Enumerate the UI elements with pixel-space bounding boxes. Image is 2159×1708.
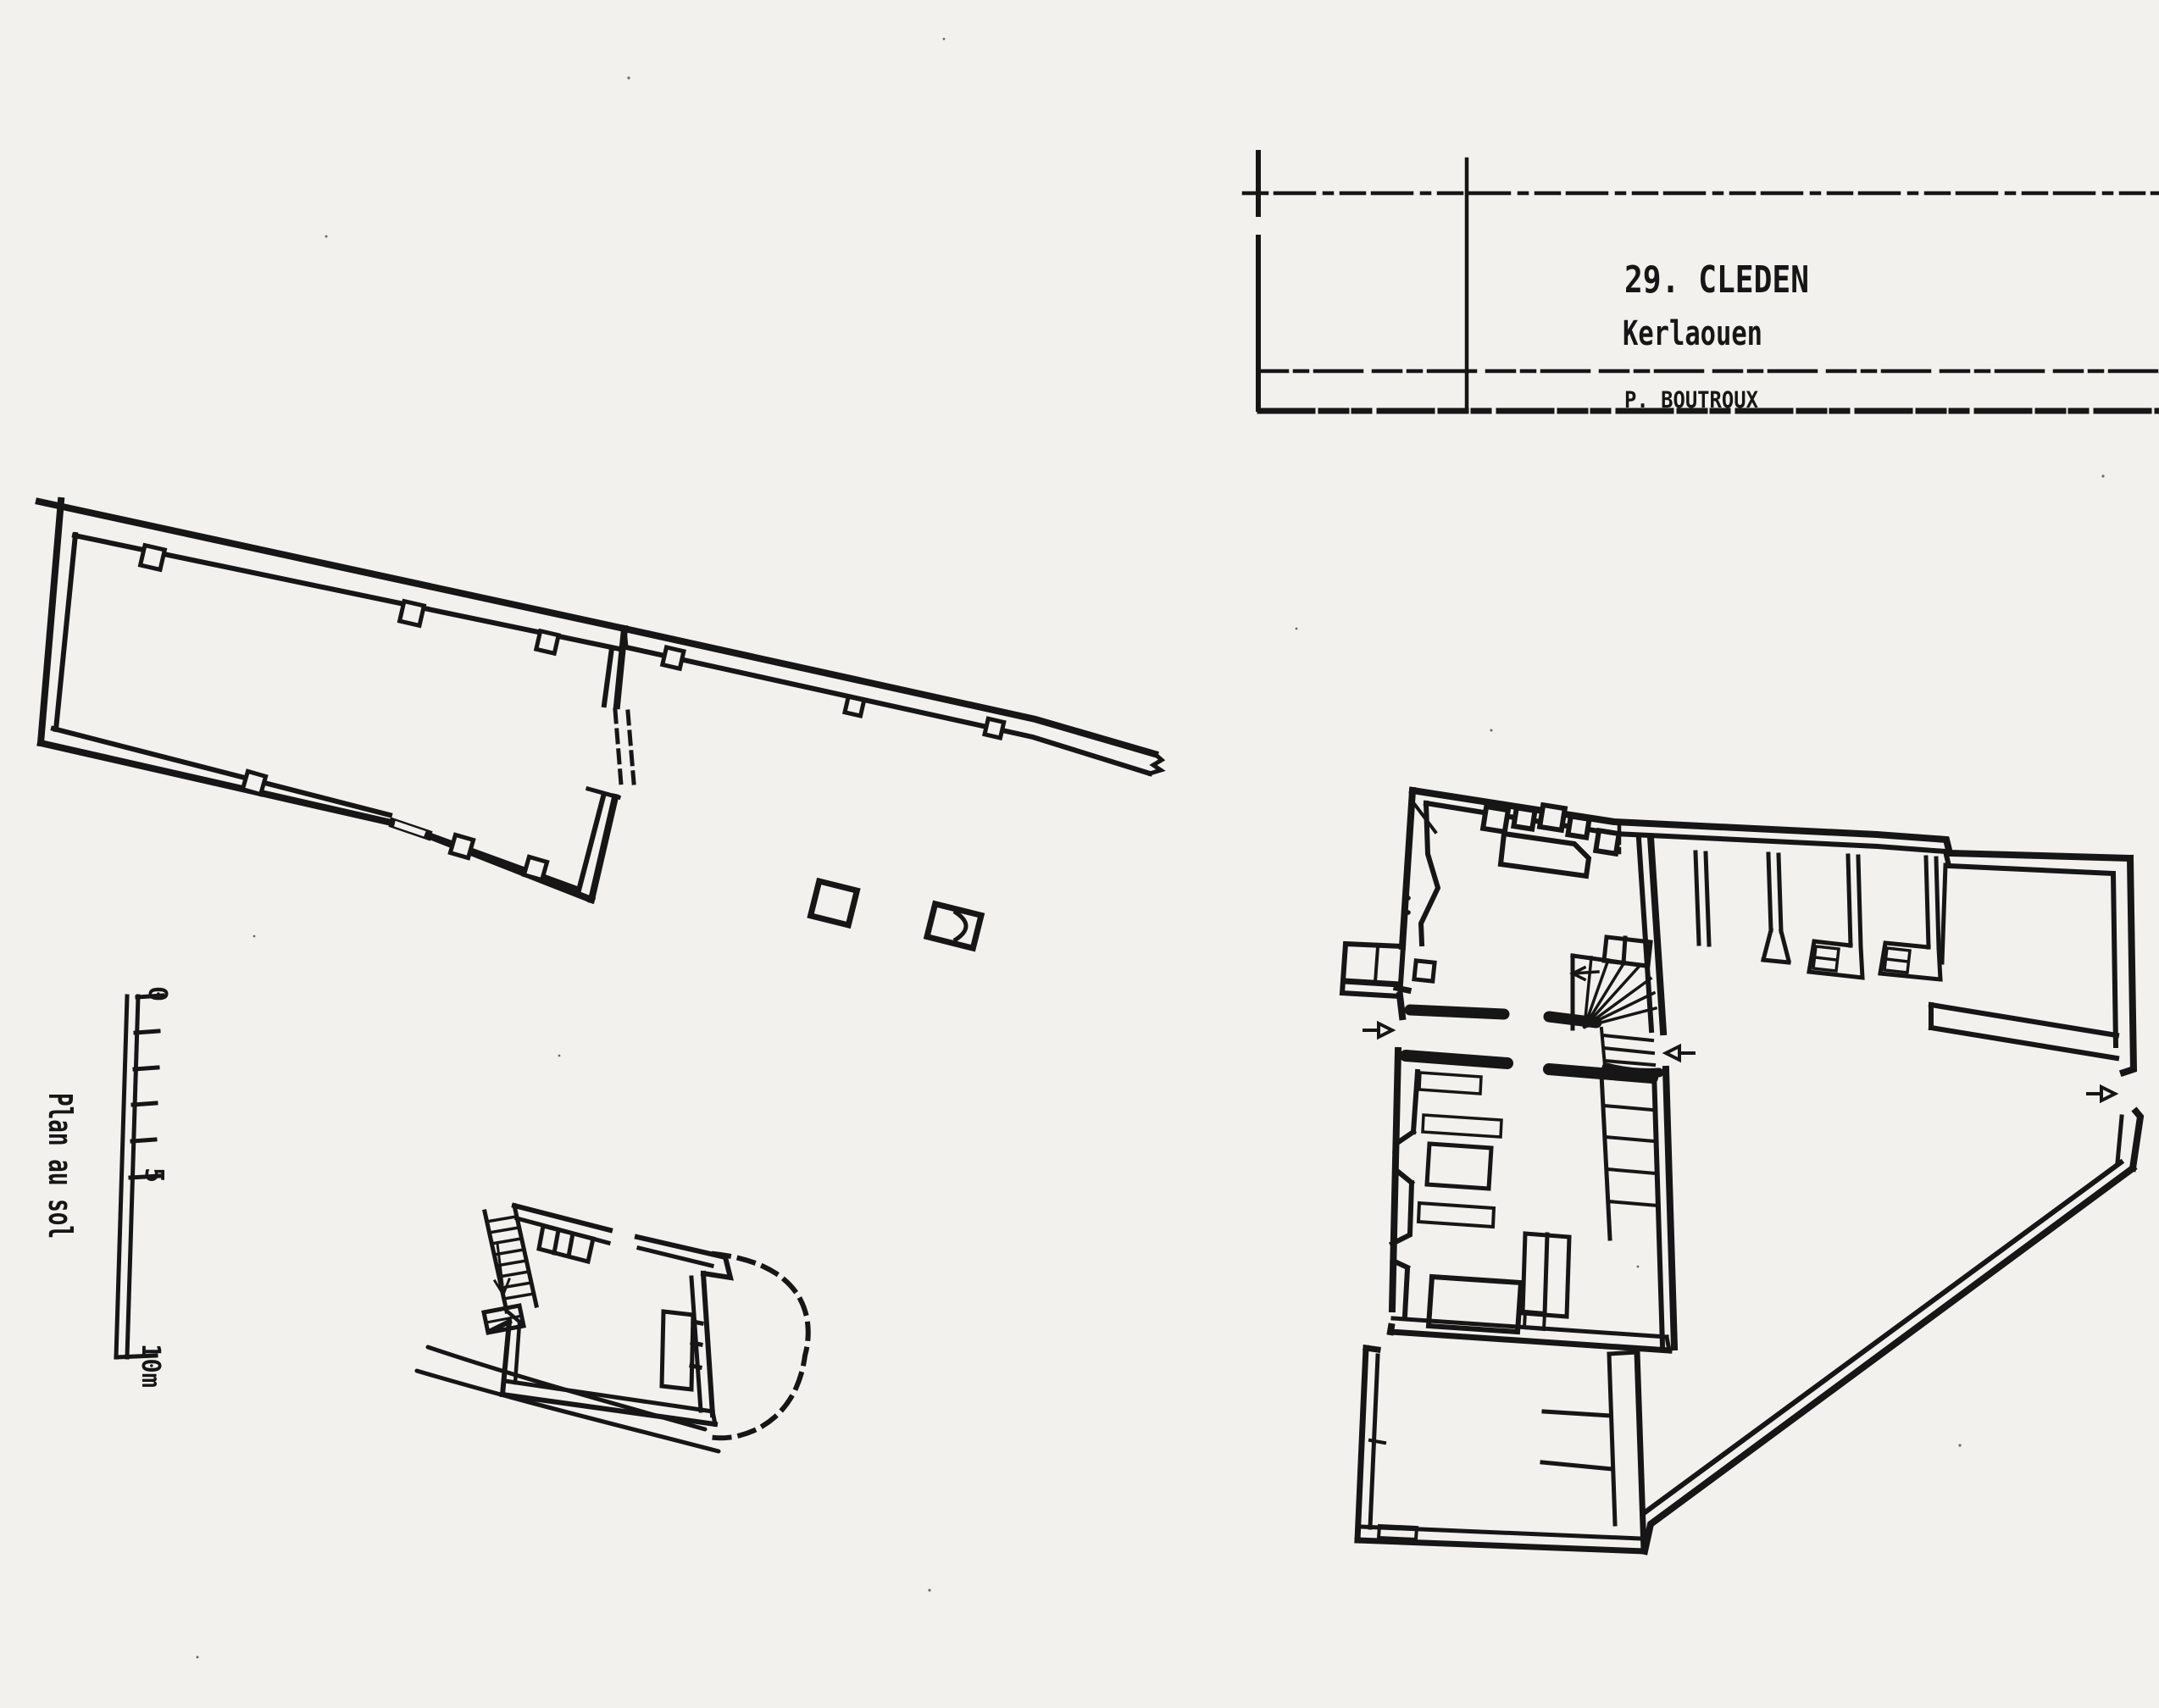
side-partition	[1601, 1074, 1610, 1239]
scale-five-label: 5	[139, 1167, 169, 1183]
window-notch	[536, 631, 558, 653]
door-arrow-icon	[2088, 1087, 2115, 1101]
window-notch	[524, 857, 547, 879]
site-plan-drawing: 29. CLEDEN Kerlaouen P. BOUTROUX	[0, 0, 2159, 1708]
chimney-breast	[1501, 834, 1589, 876]
south-room-right-outer-wall	[1637, 1352, 1644, 1550]
north-outbuilding-right-inner-wall	[579, 648, 612, 890]
bakehouse-top-outer-wall	[514, 1206, 610, 1230]
wall-niche-cupboard	[539, 1226, 593, 1262]
annex-shelf-wall	[1344, 981, 1408, 990]
big-room-left-inner-wall	[1942, 865, 1945, 962]
wall-post-notch	[663, 647, 684, 668]
bracket-foot-cell	[1884, 948, 1910, 973]
south-room	[1357, 1348, 1645, 1551]
window-notch	[242, 771, 265, 794]
interior-feature-rect	[1523, 1234, 1569, 1317]
author-label: P. BOUTROUX	[1624, 387, 1758, 413]
scale-ten-meter-label: 10m	[136, 1344, 165, 1388]
north-outbuilding-top-outer-wall	[39, 502, 624, 629]
interior-partition-band	[1418, 1203, 1494, 1227]
putlog-hole-dot	[1392, 1150, 1397, 1155]
wall-break-jagged-end	[1150, 754, 1162, 774]
plan-caption: Plan au sol	[42, 1093, 79, 1239]
bakehouse-building	[417, 1206, 808, 1451]
manor-diagonal-outer-wall	[1645, 1168, 2133, 1551]
boundary-wall	[624, 629, 1162, 774]
door-arrow-icon	[1666, 1046, 1694, 1060]
east-room-spine-wall	[1931, 1005, 2117, 1058]
cross-passage	[1364, 1010, 1694, 1078]
bakehouse-right-outer-wall	[703, 1273, 713, 1415]
interior-cell	[1419, 1073, 1481, 1094]
left-annex	[1342, 944, 1408, 996]
bakehouse-bottom-outer-wall	[502, 1395, 715, 1424]
winder-staircase	[1573, 956, 1656, 1066]
chimney-jamb-square	[1513, 807, 1535, 829]
passage-wall	[1549, 1017, 1596, 1023]
door-arrow-icon	[1364, 1023, 1392, 1037]
putlog-hole-dot	[1392, 1162, 1397, 1167]
cell-wall-splayed-foot	[1763, 854, 1789, 962]
wall-post-notch	[985, 718, 1004, 738]
chimney-jamb-square	[1596, 830, 1618, 853]
manor-right-outer-wall	[2123, 858, 2140, 1168]
east-wall-inner-below-door	[2117, 1117, 2122, 1162]
gallery-foot-pier	[1604, 937, 1651, 966]
boundary-wall-inner-line	[626, 647, 1150, 774]
scale-bar: 0 5 10m	[116, 986, 172, 1388]
cell-wall	[1696, 852, 1709, 945]
wall-post-notch	[845, 696, 864, 716]
gate-pillar	[927, 904, 981, 948]
site-title-label: 29. CLEDEN	[1624, 258, 1809, 302]
bracket-foot-cell	[1813, 946, 1839, 971]
main-block-interior	[1418, 1073, 1657, 1332]
south-room-shelves	[1542, 1411, 1612, 1469]
passage-wall	[1410, 1010, 1504, 1014]
putlog-hole-dot	[1406, 896, 1411, 901]
boundary-wall-junction-tie	[624, 629, 626, 647]
scanned-plan-sheet: 29. CLEDEN Kerlaouen P. BOUTROUX	[0, 0, 2159, 1708]
boundary-wall-outer-line	[624, 629, 1155, 754]
title-block: 29. CLEDEN Kerlaouen P. BOUTROUX	[1244, 152, 2159, 413]
chimney-jamb-square	[1483, 807, 1508, 832]
chimney-jamb-square	[1568, 816, 1589, 837]
interior-feature-rect	[1427, 1144, 1491, 1189]
gate-pillars	[811, 881, 981, 948]
place-label: Kerlaouen	[1623, 314, 1762, 353]
gate-pillar	[811, 881, 857, 925]
passage-wall	[1406, 1056, 1507, 1063]
wall-pier-stub	[1414, 961, 1435, 981]
ruined-wall-dashed-section	[615, 710, 634, 785]
side-partition-rungs	[1604, 1106, 1657, 1206]
south-room-right-inner-wall	[1609, 1352, 1637, 1524]
chimney-jamb-square	[1540, 805, 1565, 830]
lane-lower-line	[417, 1371, 719, 1451]
window-notch	[400, 602, 425, 626]
manor-complex	[1342, 790, 2140, 1551]
stair-direction-arrow-icon	[1573, 968, 1598, 979]
scan-speckles	[197, 38, 2105, 1659]
projected-oven-dashed-outline	[710, 1254, 808, 1438]
manor-diagonal-inner-wall	[1644, 1162, 2121, 1513]
scale-zero-label: 0	[142, 986, 172, 1001]
window-notch	[141, 546, 165, 570]
straight-treads	[1601, 1029, 1654, 1066]
putlog-hole-dot	[1406, 910, 1411, 915]
cell-wall-bracket-foot	[1880, 857, 1940, 979]
interior-cell	[1423, 1115, 1501, 1137]
window-notch	[450, 835, 473, 857]
annex-divider	[1375, 947, 1378, 982]
north-outbuilding-bottom-outer-wall	[41, 743, 591, 900]
south-room-bottom-outer-wall	[1357, 1540, 1645, 1551]
north-outbuilding	[39, 501, 634, 900]
